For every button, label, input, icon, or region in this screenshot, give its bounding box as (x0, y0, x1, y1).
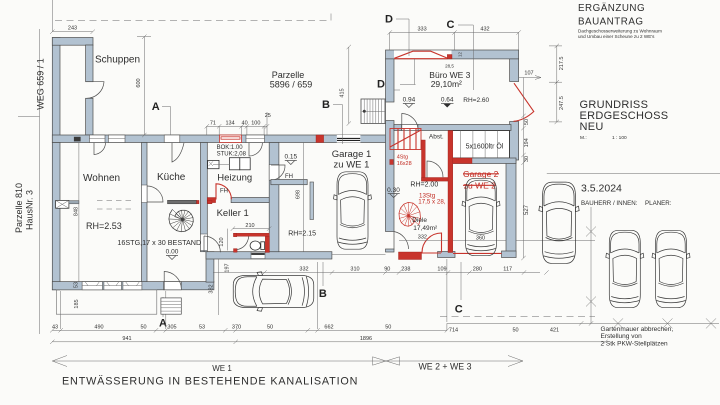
svg-text:194: 194 (524, 138, 530, 147)
svg-text:Parzelle: Parzelle (272, 70, 305, 80)
svg-text:HausNr. 3: HausNr. 3 (25, 190, 35, 230)
svg-text:Diele: Diele (412, 217, 427, 224)
svg-text:Wohnen: Wohnen (83, 173, 120, 184)
svg-text:B: B (322, 99, 330, 111)
svg-text:C: C (455, 304, 463, 316)
svg-text:WE 1: WE 1 (212, 364, 232, 373)
svg-text:71: 71 (210, 121, 216, 127)
svg-text:C: C (447, 19, 455, 31)
svg-text:16STG,17 x 30 BESTAND: 16STG,17 x 30 BESTAND (117, 238, 201, 247)
svg-text:D: D (377, 79, 385, 91)
svg-text:120: 120 (219, 237, 225, 246)
svg-text:360: 360 (476, 235, 485, 241)
svg-text:698: 698 (296, 190, 302, 199)
svg-text:238: 238 (401, 267, 410, 273)
svg-text:Garage 1: Garage 1 (332, 149, 372, 160)
svg-text:0.00: 0.00 (166, 249, 179, 256)
svg-text:50: 50 (524, 119, 530, 125)
svg-text:43: 43 (52, 324, 58, 330)
svg-text:107: 107 (524, 71, 533, 77)
svg-text:30: 30 (524, 156, 530, 162)
svg-text:STUK:2,08: STUK:2,08 (217, 151, 247, 157)
svg-text:Erstellung von: Erstellung von (601, 333, 643, 340)
svg-text:Gartenmauer abbrechen,: Gartenmauer abbrechen, (601, 326, 674, 333)
svg-text:0.64: 0.64 (441, 97, 454, 104)
svg-text:BAUHERR / INNEN:: BAUHERR / INNEN: (581, 200, 638, 207)
svg-text:134: 134 (226, 121, 235, 127)
svg-text:370: 370 (232, 324, 241, 330)
svg-text:28,5: 28,5 (445, 63, 454, 68)
svg-text:100: 100 (251, 121, 260, 127)
svg-text:5x1600ltr Öl: 5x1600ltr Öl (466, 143, 504, 151)
svg-text:12: 12 (458, 52, 463, 58)
svg-text:M.:: M.: (580, 135, 587, 141)
svg-text:1 : 100: 1 : 100 (612, 135, 627, 141)
svg-text:Schuppen: Schuppen (95, 55, 140, 66)
svg-text:117: 117 (503, 267, 512, 273)
svg-text:RH=2.60: RH=2.60 (463, 97, 489, 104)
svg-text:Abst.: Abst. (429, 134, 444, 141)
svg-text:RH=2.15: RH=2.15 (288, 230, 316, 237)
svg-text:941: 941 (122, 336, 131, 342)
svg-text:280: 280 (473, 267, 482, 273)
svg-text:243: 243 (68, 26, 77, 32)
svg-text:305: 305 (167, 324, 176, 330)
svg-text:RH=2.53: RH=2.53 (86, 221, 122, 231)
svg-text:ERGÄNZUNG: ERGÄNZUNG (578, 3, 645, 14)
svg-text:185: 185 (74, 299, 80, 308)
svg-text:Küche: Küche (157, 172, 186, 183)
svg-text:D: D (385, 14, 393, 26)
svg-text:ENTWÄSSERUNG IN BESTEHENDE: ENTWÄSSERUNG IN BESTEHENDE KANALISATION (62, 376, 358, 388)
svg-text:NEU: NEU (580, 121, 604, 133)
svg-text:247.5: 247.5 (559, 96, 565, 110)
svg-text:Parzelle 810: Parzelle 810 (14, 183, 24, 233)
svg-text:848: 848 (74, 207, 80, 216)
svg-text:310: 310 (350, 267, 359, 273)
svg-text:217.5: 217.5 (559, 57, 565, 71)
svg-text:0.94: 0.94 (403, 97, 416, 104)
svg-text:432: 432 (480, 26, 489, 32)
svg-text:210: 210 (245, 223, 254, 229)
svg-text:662: 662 (324, 324, 333, 330)
svg-text:FH: FH (285, 174, 293, 180)
svg-text:2 Stk PKW-Stellplätzen: 2 Stk PKW-Stellplätzen (601, 340, 668, 347)
svg-text:Keller 1: Keller 1 (217, 208, 249, 219)
svg-text:50: 50 (512, 328, 518, 334)
svg-text:90: 90 (384, 267, 390, 273)
svg-text:Heizung: Heizung (217, 172, 252, 183)
svg-text:17,5 x 28,: 17,5 x 28, (418, 198, 445, 205)
svg-text:40: 40 (242, 121, 248, 127)
svg-text:415: 415 (340, 88, 346, 97)
svg-text:WE 2 + WE 3: WE 2 + WE 3 (418, 362, 471, 372)
svg-text:BOK:1.00: BOK:1.00 (217, 145, 244, 151)
svg-text:1896: 1896 (360, 336, 372, 342)
svg-text:RH=2.00: RH=2.00 (410, 182, 438, 189)
svg-text:490: 490 (94, 324, 103, 330)
svg-text:53: 53 (199, 324, 205, 330)
svg-text:109: 109 (437, 267, 446, 273)
svg-text:332: 332 (299, 267, 308, 273)
svg-text:50: 50 (140, 324, 146, 330)
svg-text:16x28: 16x28 (397, 161, 412, 167)
svg-text:B: B (319, 288, 327, 300)
svg-text:A: A (152, 101, 160, 113)
svg-text:197: 197 (224, 263, 230, 272)
svg-text:WEG 659 / 1: WEG 659 / 1 (36, 58, 46, 110)
svg-text:332: 332 (418, 234, 427, 240)
svg-text:17,49m²: 17,49m² (413, 225, 438, 232)
svg-text:5896 / 659: 5896 / 659 (270, 80, 313, 90)
svg-text:3.5.2024: 3.5.2024 (581, 183, 622, 195)
svg-text:333: 333 (418, 26, 427, 32)
svg-text:Dachgeschosserweiterung zu Woh: Dachgeschosserweiterung zu Wohnraum (578, 28, 662, 33)
svg-text:zu WE 1: zu WE 1 (334, 160, 370, 171)
svg-text:BAUANTRAG: BAUANTRAG (578, 17, 643, 28)
svg-text:421: 421 (550, 328, 559, 334)
svg-text:714: 714 (449, 328, 458, 334)
svg-text:FH: FH (220, 189, 228, 195)
svg-text:4Stg: 4Stg (397, 155, 408, 161)
svg-text:0.15: 0.15 (284, 154, 297, 161)
svg-text:und Umbau einer Scheune zu 2 W: und Umbau einer Scheune zu 2 WE's (578, 34, 655, 39)
svg-text:600: 600 (136, 78, 142, 87)
svg-text:50: 50 (385, 324, 391, 330)
svg-text:527: 527 (524, 204, 530, 215)
svg-text:53: 53 (73, 282, 79, 288)
svg-text:382: 382 (209, 284, 215, 293)
svg-text:0.30: 0.30 (387, 187, 400, 194)
svg-text:50: 50 (267, 324, 273, 330)
svg-text:PLANER:: PLANER: (645, 200, 672, 207)
svg-text:25: 25 (265, 113, 271, 119)
svg-text:29,10m²: 29,10m² (431, 79, 462, 89)
